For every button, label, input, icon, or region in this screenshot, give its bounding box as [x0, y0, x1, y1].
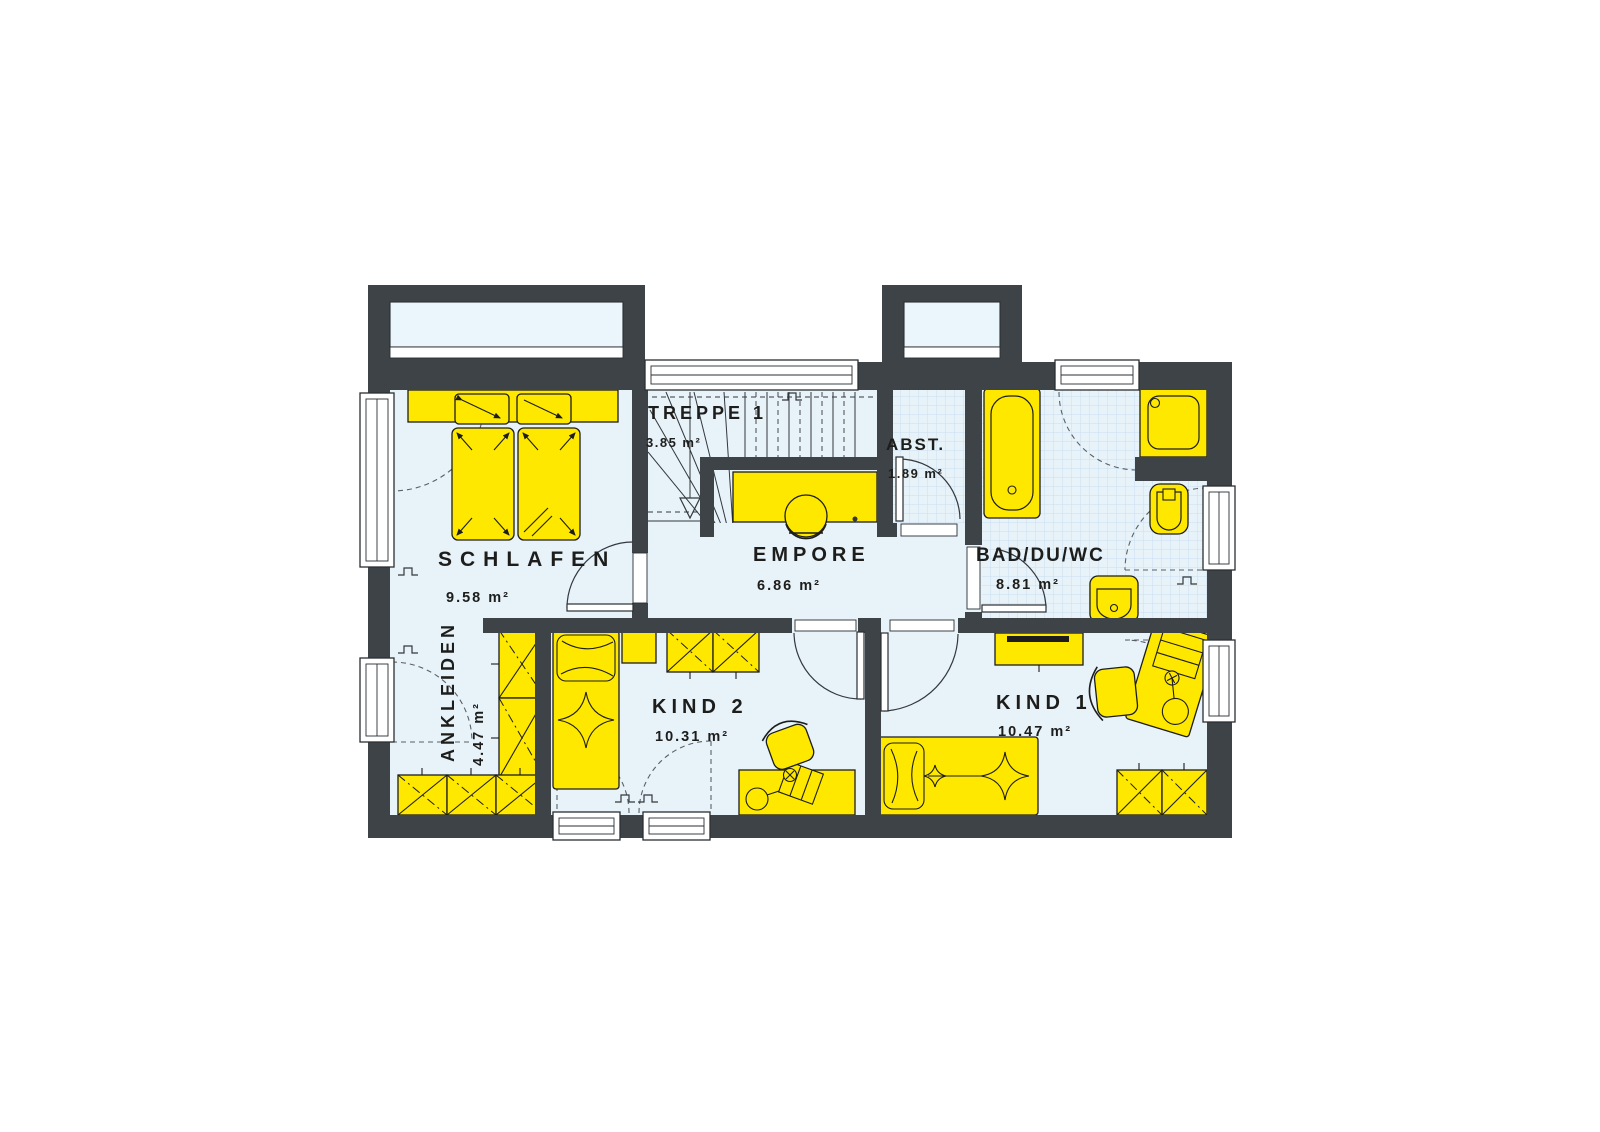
room-label-kind2: KIND 2	[652, 696, 748, 718]
wardrobe-icon	[1117, 763, 1207, 815]
room-area-ankleiden: 4.47 m²	[471, 702, 487, 766]
wardrobe-icon	[667, 630, 759, 679]
schlafen-door-leaf	[567, 604, 633, 611]
room-label-bad: BAD/DU/WC	[976, 545, 1105, 566]
shower-icon	[1140, 388, 1207, 457]
window-schlafen	[360, 393, 394, 567]
abst-tile-floor	[893, 390, 965, 523]
window-bad-right	[1203, 486, 1235, 570]
window-treppe	[645, 360, 858, 390]
chair-icon	[785, 495, 827, 539]
window-kind2-b	[643, 812, 710, 840]
window-kind2-a	[553, 812, 620, 840]
shower-niche-wall	[1135, 457, 1207, 481]
sink-icon	[1090, 576, 1138, 622]
room-area-abst: 1.89 m²	[888, 466, 943, 481]
dormer-right-glass	[904, 302, 1000, 347]
single-bed-icon	[878, 737, 1038, 815]
kind1-door-sill	[890, 620, 954, 631]
bad-door-leaf	[982, 605, 1046, 612]
room-area-schlafen: 9.58 m²	[446, 590, 510, 606]
room-area-bad: 8.81 m²	[996, 577, 1060, 593]
bathtub-icon	[984, 388, 1040, 518]
room-label-schlafen: SCHLAFEN	[438, 548, 616, 571]
kind1-door-leaf	[881, 633, 888, 711]
room-area-kind1: 10.47 m²	[998, 724, 1072, 740]
schlafen-door-sill	[633, 553, 647, 603]
room-label-ankleiden: ANKLEIDEN	[438, 621, 458, 762]
room-label-kind1: KIND 1	[996, 692, 1092, 714]
door-stop	[853, 517, 858, 522]
kind2-door-leaf	[857, 632, 864, 699]
abst-door-sill	[901, 524, 957, 536]
dormer-left-glass	[390, 302, 623, 347]
room-area-kind2: 10.31 m²	[655, 729, 729, 745]
room-label-treppe1: TREPPE 1	[648, 403, 767, 423]
room-area-empore: 6.86 m²	[757, 578, 821, 594]
floor-plan-page: SCHLAFEN 9.58 m² TREPPE 1 3.85 m² ABST. …	[0, 0, 1600, 1132]
dormer-windows	[390, 302, 1000, 358]
floor-plan-drawing: SCHLAFEN 9.58 m² TREPPE 1 3.85 m² ABST. …	[0, 0, 1600, 1132]
window-bad-top	[1055, 360, 1139, 390]
single-bed-icon	[553, 631, 619, 789]
room-label-abst: ABST.	[886, 435, 945, 454]
desk-icon	[739, 762, 855, 815]
kind2-door-sill	[795, 620, 856, 631]
room-label-empore: EMPORE	[753, 544, 870, 566]
room-area-treppe1: 3.85 m²	[646, 435, 701, 450]
nightstand	[622, 631, 656, 663]
window-kind1	[1203, 640, 1235, 722]
toilet-icon	[1150, 484, 1188, 534]
window-ankleiden	[360, 658, 394, 742]
